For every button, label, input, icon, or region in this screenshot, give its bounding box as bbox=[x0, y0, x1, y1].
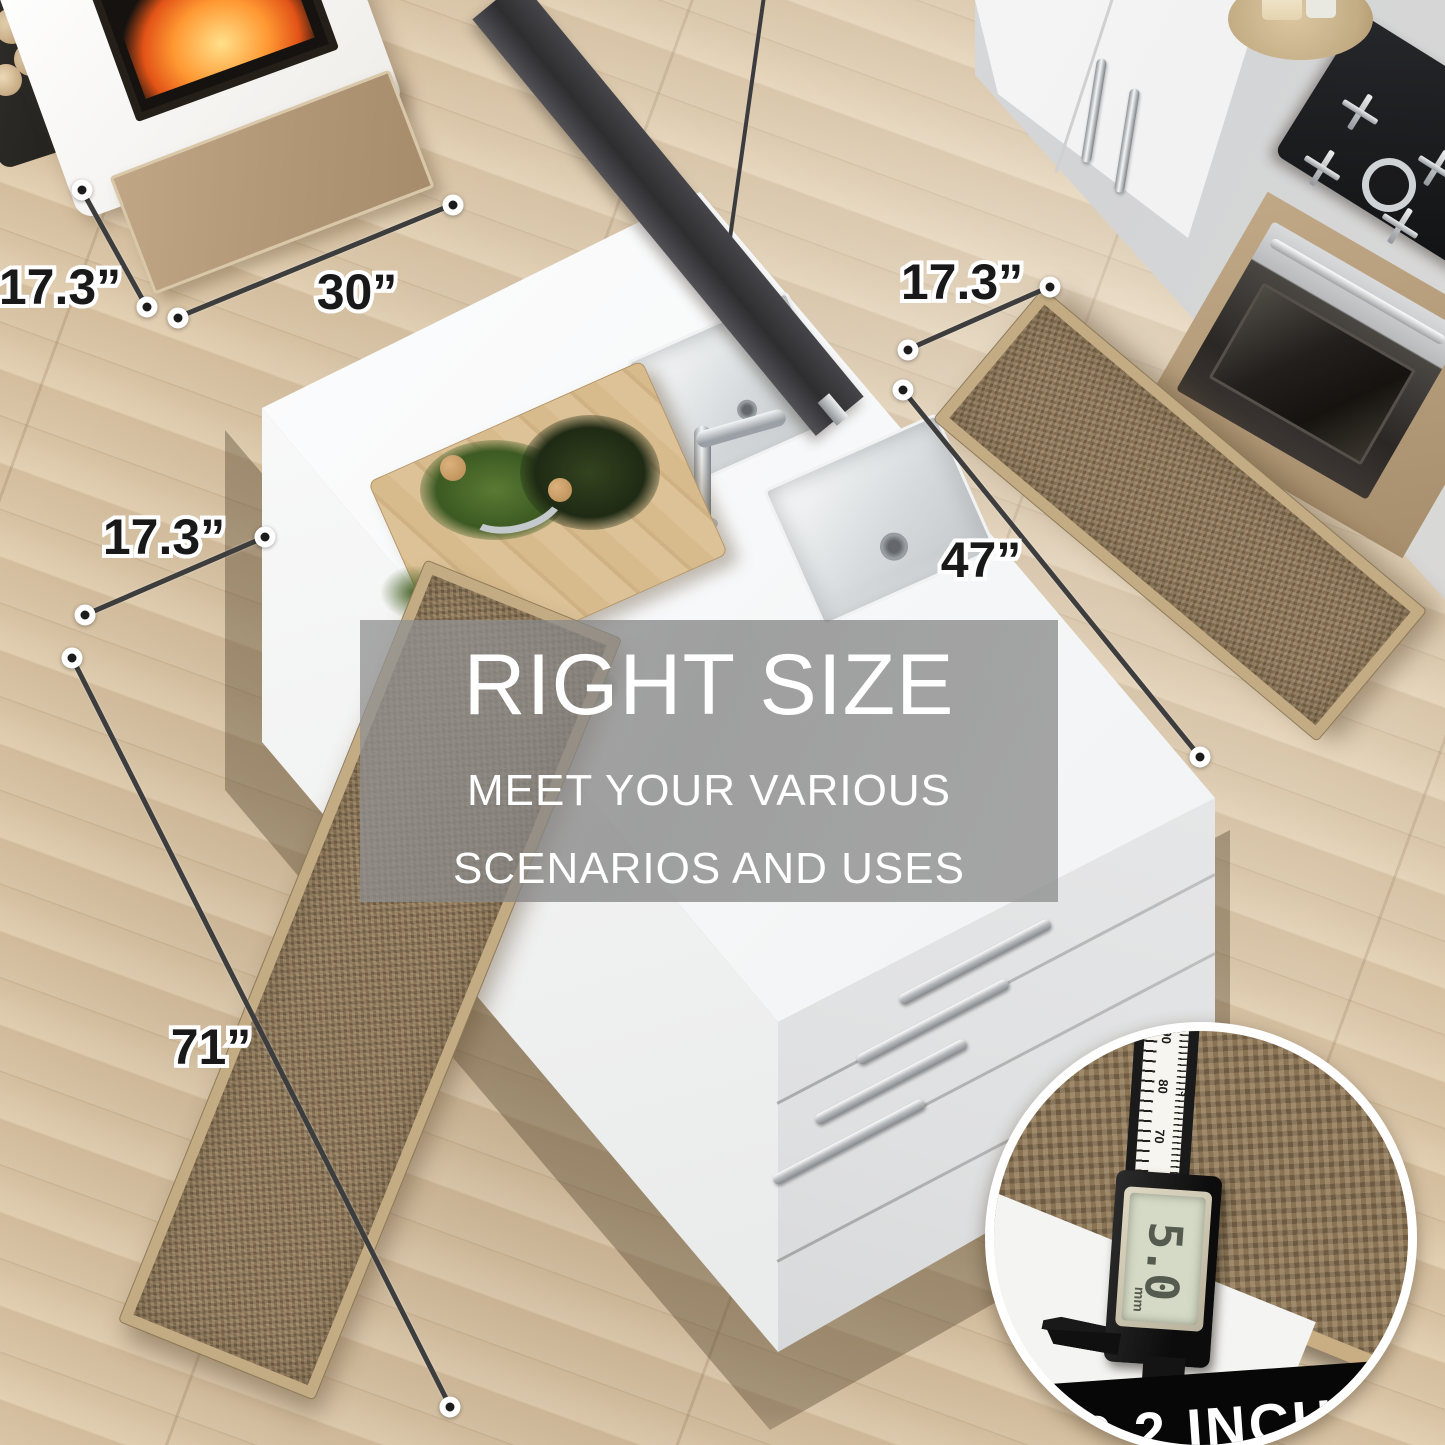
dimension-endpoint-dot bbox=[62, 648, 83, 669]
ruler-number: 70 bbox=[1151, 1127, 1167, 1146]
dimension-label: 71” bbox=[171, 1018, 252, 1076]
lcd-screen: 5.0 mm bbox=[1121, 1193, 1206, 1326]
dimension-endpoint-dot bbox=[255, 527, 276, 548]
candle bbox=[1262, 0, 1302, 20]
overlay-band: RIGHT SIZE MEET YOUR VARIOUS SCENARIOS A… bbox=[360, 620, 1058, 902]
dimension-endpoint-dot bbox=[75, 605, 96, 626]
dimension-label: 30” bbox=[317, 263, 398, 321]
dimension-label: 47” bbox=[941, 531, 1022, 589]
dimension-endpoint-dot bbox=[443, 195, 464, 216]
ruler-number: 90 bbox=[1158, 1027, 1174, 1046]
dimension-endpoint-dot bbox=[1190, 747, 1211, 768]
dimension-endpoint-dot bbox=[137, 297, 158, 318]
knife-handle bbox=[548, 478, 572, 502]
thickness-inset-circle: 90 80 70 3 5.0 mm 0.2 INCH bbox=[985, 1022, 1417, 1445]
dimension-label: 17.3” bbox=[103, 508, 225, 566]
lcd-unit: mm bbox=[1130, 1286, 1148, 1312]
dimension-endpoint-dot bbox=[898, 340, 919, 361]
dimension-endpoint-dot bbox=[72, 180, 93, 201]
glass-jar bbox=[1306, 0, 1336, 18]
dimension-endpoint-dot bbox=[168, 308, 189, 329]
overlay-subtitle: SCENARIOS AND USES bbox=[360, 844, 1058, 894]
ruler-number: 80 bbox=[1155, 1077, 1171, 1096]
kitchen-scene: 17.3” 30” 17.3” 47” 17.3” 71” RIGHT SIZE… bbox=[0, 0, 1445, 1445]
sink-drain bbox=[876, 528, 913, 565]
overlay-title: RIGHT SIZE bbox=[360, 636, 1058, 735]
caliper-body: 5.0 mm bbox=[1103, 1170, 1222, 1369]
overlay-subtitle: MEET YOUR VARIOUS bbox=[360, 766, 1058, 816]
dimension-endpoint-dot bbox=[1040, 277, 1061, 298]
ruler-inch-number: 3 bbox=[1178, 1091, 1189, 1097]
lcd-bezel: 5.0 mm bbox=[1115, 1186, 1213, 1332]
thickness-caption: 0.2 INCH bbox=[985, 1377, 1417, 1445]
dimension-endpoint-dot bbox=[893, 380, 914, 401]
dimension-label: 17.3” bbox=[901, 253, 1023, 311]
dimension-label: 17.3” bbox=[0, 258, 121, 316]
knife-handle bbox=[440, 455, 466, 481]
dimension-endpoint-dot bbox=[440, 1397, 461, 1418]
